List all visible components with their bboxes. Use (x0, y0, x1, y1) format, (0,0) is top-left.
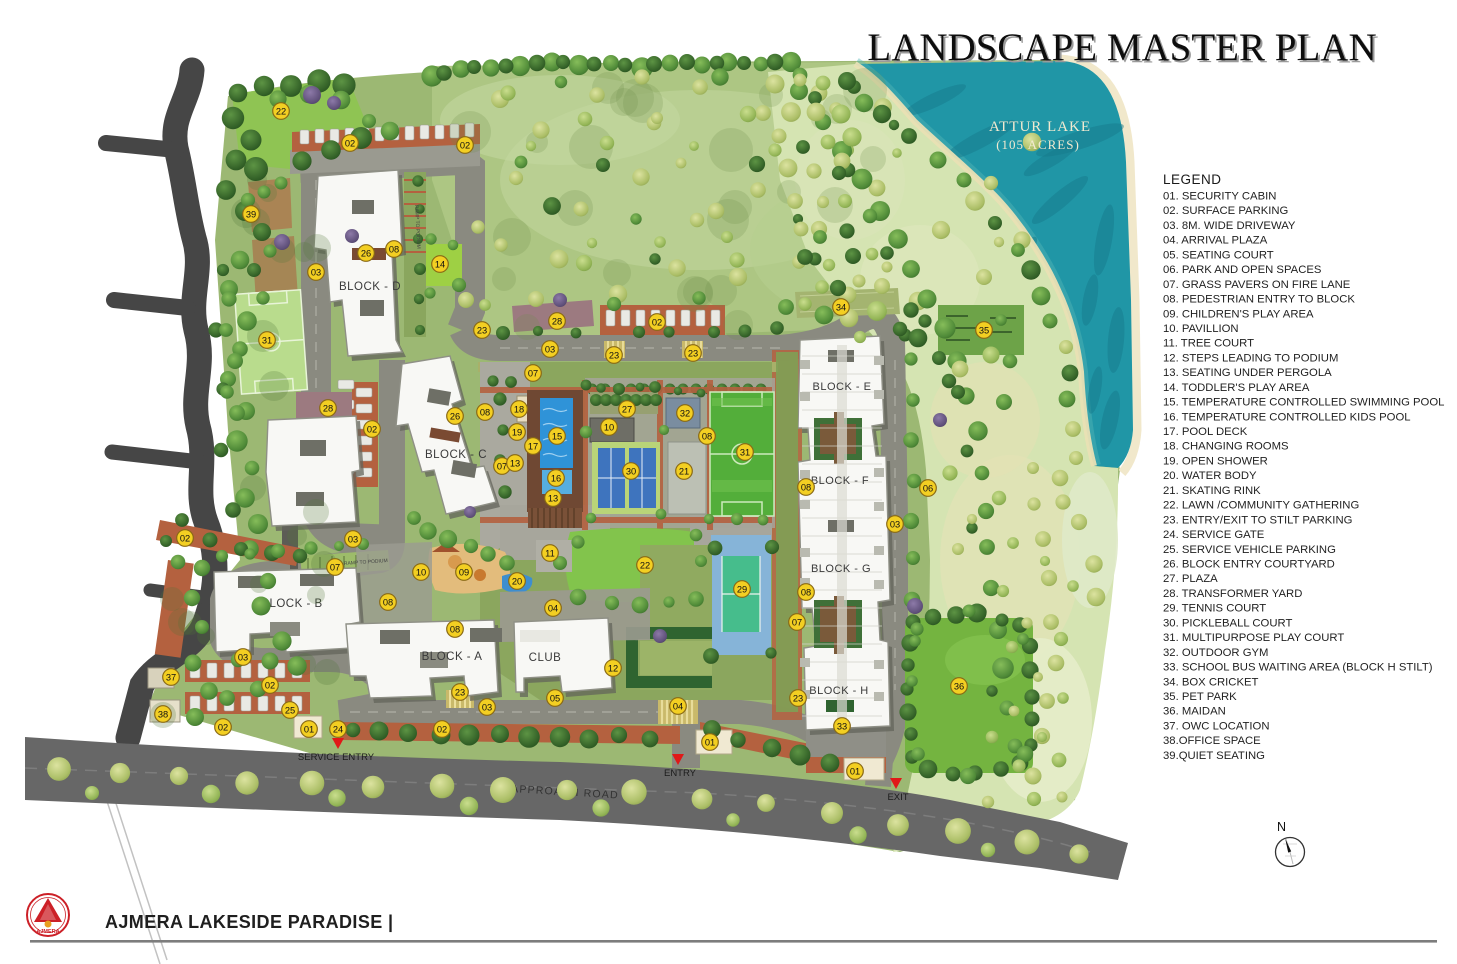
svg-text:25: 25 (285, 705, 295, 715)
svg-text:08: 08 (389, 244, 399, 254)
svg-text:33: 33 (837, 721, 847, 731)
svg-text:23: 23 (793, 693, 803, 703)
svg-text:30. PICKLEBALL COURT: 30. PICKLEBALL COURT (1163, 617, 1292, 629)
svg-text:36: 36 (954, 681, 964, 691)
svg-text:35. PET PARK: 35. PET PARK (1163, 691, 1237, 703)
svg-text:29: 29 (737, 584, 747, 594)
svg-text:10. PAVILLION: 10. PAVILLION (1163, 323, 1239, 335)
svg-text:07: 07 (792, 617, 802, 627)
svg-text:03. 8M. WIDE DRIVEWAY: 03. 8M. WIDE DRIVEWAY (1163, 220, 1296, 232)
svg-text:09: 09 (459, 567, 469, 577)
svg-text:06. PARK AND OPEN SPACES: 06. PARK AND OPEN SPACES (1163, 264, 1322, 276)
svg-text:07: 07 (330, 562, 340, 572)
svg-text:22. LAWN /COMMUNITY GATHERING: 22. LAWN /COMMUNITY GATHERING (1163, 500, 1359, 512)
svg-text:BLOCK - A: BLOCK - A (422, 651, 483, 663)
svg-text:AJMERA LAKESIDE PARADISE |: AJMERA LAKESIDE PARADISE | (105, 912, 393, 932)
svg-text:38.OFFICE SPACE: 38.OFFICE SPACE (1163, 735, 1261, 747)
svg-text:23: 23 (477, 325, 487, 335)
svg-text:19. OPEN SHOWER: 19. OPEN SHOWER (1163, 456, 1268, 468)
svg-text:14. TODDLER'S PLAY AREA: 14. TODDLER'S PLAY AREA (1163, 382, 1310, 394)
svg-text:03: 03 (238, 652, 248, 662)
svg-text:08: 08 (383, 597, 393, 607)
svg-text:31: 31 (740, 447, 750, 457)
svg-text:22: 22 (276, 106, 286, 116)
svg-text:28: 28 (552, 316, 562, 326)
svg-text:CLUB: CLUB (529, 652, 562, 664)
svg-text:LANDSCAPE MASTER PLAN: LANDSCAPE MASTER PLAN (867, 26, 1376, 69)
svg-text:03: 03 (545, 344, 555, 354)
svg-text:01: 01 (304, 724, 314, 734)
svg-text:ATTUR LAKE: ATTUR LAKE (989, 119, 1091, 135)
svg-text:22: 22 (640, 560, 650, 570)
svg-text:28. TRANSFORMER YARD: 28. TRANSFORMER YARD (1163, 588, 1302, 600)
svg-text:27: 27 (622, 404, 632, 414)
svg-text:28: 28 (323, 403, 333, 413)
svg-text:18: 18 (514, 404, 524, 414)
svg-text:05: 05 (550, 693, 560, 703)
svg-text:31: 31 (262, 335, 272, 345)
svg-text:24: 24 (333, 724, 343, 734)
svg-text:08: 08 (480, 407, 490, 417)
svg-text:02. SURFACE PARKING: 02. SURFACE PARKING (1163, 205, 1288, 217)
svg-text:02: 02 (218, 722, 228, 732)
svg-text:02: 02 (367, 424, 377, 434)
svg-text:02: 02 (437, 724, 447, 734)
svg-text:07: 07 (497, 461, 507, 471)
svg-text:39: 39 (246, 209, 256, 219)
svg-text:02: 02 (345, 138, 355, 148)
svg-text:34: 34 (836, 302, 846, 312)
svg-text:32. OUTDOOR GYM: 32. OUTDOOR GYM (1163, 647, 1268, 659)
svg-text:21: 21 (679, 466, 689, 476)
svg-text:08: 08 (801, 587, 811, 597)
svg-text:17. POOL DECK: 17. POOL DECK (1163, 426, 1248, 438)
svg-text:39.QUIET SEATING: 39.QUIET SEATING (1163, 750, 1265, 762)
svg-text:35: 35 (979, 325, 989, 335)
svg-text:10: 10 (416, 567, 426, 577)
svg-text:03: 03 (482, 702, 492, 712)
svg-text:04: 04 (548, 603, 558, 613)
svg-text:(105 ACRES): (105 ACRES) (996, 137, 1080, 152)
svg-text:03: 03 (311, 267, 321, 277)
svg-text:01. SECURITY CABIN: 01. SECURITY CABIN (1163, 191, 1276, 203)
svg-text:20. WATER BODY: 20. WATER BODY (1163, 470, 1257, 482)
svg-text:17: 17 (528, 441, 538, 451)
svg-text:25. SERVICE VEHICLE PARKING: 25. SERVICE VEHICLE PARKING (1163, 544, 1336, 556)
svg-text:23: 23 (688, 348, 698, 358)
svg-text:23: 23 (609, 350, 619, 360)
svg-text:BLOCK - H: BLOCK - H (809, 685, 869, 697)
svg-text:31. MULTIPURPOSE PLAY COURT: 31. MULTIPURPOSE PLAY COURT (1163, 632, 1344, 644)
svg-text:16: 16 (551, 473, 561, 483)
svg-text:03: 03 (890, 519, 900, 529)
svg-text:SERVICE ENTRY: SERVICE ENTRY (298, 752, 375, 763)
svg-text:N: N (1277, 820, 1286, 834)
svg-text:15: 15 (552, 431, 562, 441)
svg-text:30: 30 (626, 466, 636, 476)
svg-text:12: 12 (608, 663, 618, 673)
svg-text:26. BLOCK ENTRY COURTYARD: 26. BLOCK ENTRY COURTYARD (1163, 559, 1335, 571)
svg-text:07: 07 (528, 368, 538, 378)
svg-text:01: 01 (705, 737, 715, 747)
svg-text:BLOCK - G: BLOCK - G (811, 563, 871, 575)
svg-text:08: 08 (450, 624, 460, 634)
svg-text:08. PEDESTRIAN ENTRY TO BLOCK: 08. PEDESTRIAN ENTRY TO BLOCK (1163, 294, 1355, 306)
svg-text:02: 02 (652, 317, 662, 327)
svg-text:37. OWC LOCATION: 37. OWC LOCATION (1163, 720, 1270, 732)
svg-text:07. GRASS PAVERS ON FIRE LANE: 07. GRASS PAVERS ON FIRE LANE (1163, 279, 1351, 291)
svg-text:20: 20 (512, 576, 522, 586)
svg-text:BLOCK - F: BLOCK - F (811, 475, 869, 487)
svg-text:13. SEATING UNDER PERGOLA: 13. SEATING UNDER PERGOLA (1163, 367, 1332, 379)
svg-text:13: 13 (548, 493, 558, 503)
svg-text:21. SKATING RINK: 21. SKATING RINK (1163, 485, 1261, 497)
svg-text:27. PLAZA: 27. PLAZA (1163, 573, 1218, 585)
svg-text:01: 01 (850, 766, 860, 776)
svg-text:EXIT: EXIT (887, 792, 908, 803)
svg-text:32: 32 (680, 408, 690, 418)
svg-text:29. TENNIS COURT: 29. TENNIS COURT (1163, 603, 1266, 615)
svg-text:19: 19 (512, 427, 522, 437)
svg-text:08: 08 (702, 431, 712, 441)
svg-text:24. SERVICE GATE: 24. SERVICE GATE (1163, 529, 1265, 541)
svg-text:33. SCHOOL BUS WAITING AREA (: 33. SCHOOL BUS WAITING AREA (BLOCK H STI… (1163, 662, 1433, 674)
svg-text:26: 26 (450, 411, 460, 421)
svg-text:38: 38 (158, 709, 168, 719)
svg-text:34. BOX CRICKET: 34. BOX CRICKET (1163, 676, 1259, 688)
svg-text:06: 06 (923, 483, 933, 493)
svg-text:05. SEATING COURT: 05. SEATING COURT (1163, 249, 1274, 261)
svg-text:04. ARRIVAL PLAZA: 04. ARRIVAL PLAZA (1163, 235, 1268, 247)
svg-text:BLOCK - C: BLOCK - C (425, 449, 487, 461)
svg-text:13: 13 (510, 458, 520, 468)
svg-text:10: 10 (604, 422, 614, 432)
svg-text:02: 02 (180, 533, 190, 543)
svg-text:AJMERA: AJMERA (36, 929, 59, 935)
svg-text:16. TEMPERATURE CONTROLLED KI: 16. TEMPERATURE CONTROLLED KIDS POOL (1163, 411, 1411, 423)
svg-text:26: 26 (361, 248, 371, 258)
svg-text:11. TREE COURT: 11. TREE COURT (1163, 338, 1254, 350)
svg-text:02: 02 (265, 680, 275, 690)
svg-text:23: 23 (455, 687, 465, 697)
svg-text:15. TEMPERATURE CONTROLLED SW: 15. TEMPERATURE CONTROLLED SWIMMING POOL (1163, 397, 1444, 409)
svg-text:BLOCK - D: BLOCK - D (339, 281, 401, 293)
svg-text:09. CHILDREN'S PLAY AREA: 09. CHILDREN'S PLAY AREA (1163, 308, 1314, 320)
svg-text:ENTRY: ENTRY (664, 768, 697, 779)
svg-text:BLOCK - E: BLOCK - E (813, 381, 872, 393)
svg-text:08: 08 (801, 482, 811, 492)
svg-text:03: 03 (348, 534, 358, 544)
svg-text:02: 02 (460, 140, 470, 150)
svg-text:36. MAIDAN: 36. MAIDAN (1163, 706, 1226, 718)
svg-text:23. ENTRY/EXIT TO STILT PARKI: 23. ENTRY/EXIT TO STILT PARKING (1163, 514, 1352, 526)
svg-text:37: 37 (166, 672, 176, 682)
svg-text:11: 11 (545, 548, 555, 558)
svg-text:12. STEPS LEADING TO PODIUM: 12. STEPS LEADING TO PODIUM (1163, 352, 1338, 364)
svg-text:18. CHANGING ROOMS: 18. CHANGING ROOMS (1163, 441, 1289, 453)
svg-text:04: 04 (673, 701, 683, 711)
svg-text:LEGEND: LEGEND (1163, 172, 1222, 187)
svg-text:14: 14 (435, 259, 445, 269)
